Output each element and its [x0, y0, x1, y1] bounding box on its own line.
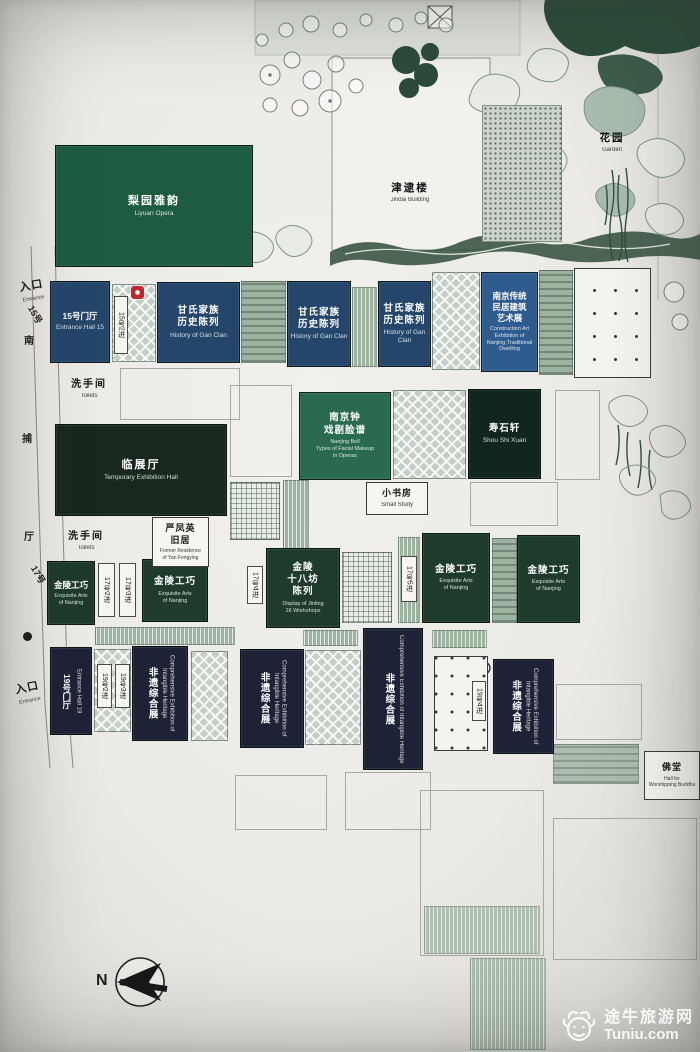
building-label-en: Shou Shi Xuan	[483, 437, 526, 445]
label-zh: 入口	[14, 680, 40, 697]
courtyard-strip	[241, 281, 286, 363]
building-label-en: Liyuan Opera	[134, 210, 173, 218]
building-label-en: Comprehensive Exhibition of Intangible H…	[523, 660, 538, 753]
building-label-en: History of Gan Clan	[170, 332, 227, 340]
building-yan-fengying-residence: 严凤英 旧居 Former Residence of Yan Fengying	[152, 517, 209, 567]
building-label-en: Comprehensive Exhibition of Intangible H…	[272, 650, 287, 747]
outline-block	[553, 818, 697, 960]
outline-block	[230, 385, 292, 477]
compass-north-label: N	[96, 972, 108, 990]
street-char-bu: 捕	[22, 430, 32, 445]
outline-block	[345, 772, 431, 830]
label-en: Former Residence of Yan Fengying	[160, 548, 201, 561]
label-zh: 洗手间	[68, 531, 104, 542]
building-label-en: Comprehensive Exhibition of Intangible H…	[160, 647, 175, 740]
building-jinling-crafts-3: 金陵工巧 Exquisite Arts of Nanjing	[422, 533, 490, 623]
building-label-en: Exquisite Arts of Nanjing	[532, 579, 565, 593]
building-intangible-heritage-2: 非遗综合展 Comprehensive Exhibition of Intang…	[240, 649, 304, 748]
garden-ground	[255, 0, 520, 250]
courtyard-marker: 15号2进	[114, 296, 128, 354]
building-label-zh: 金陵工巧	[527, 565, 569, 577]
courtyard-strip	[432, 630, 487, 648]
building-label-zh: 金陵工巧	[435, 564, 477, 576]
label-en: Hall for Worshipping Buddha	[649, 776, 695, 789]
building-jinling-crafts-1: 金陵工巧 Exquisite Arts of Nanjing	[47, 561, 95, 625]
dotted-terrace	[482, 105, 562, 242]
label-en: Jindai Building	[360, 197, 460, 205]
building-label-zh: 非遗综合展	[509, 680, 521, 733]
courtyard-marker: 17号4进	[247, 566, 263, 604]
building-intangible-heritage-3: 非遗综合展 Comprehensive Exhibition of Intang…	[363, 628, 423, 770]
building-gan-clan-history-3: 甘氏家族 历史陈列 History of Gan Clan	[378, 281, 431, 367]
building-label-en: Construction Art Exhibition of Nanjing T…	[487, 326, 533, 354]
building-label-zh: 19号门厅	[61, 674, 72, 709]
courtyard-strip	[95, 627, 235, 645]
label-jindai-building: 津逮楼 Jindai Building	[360, 178, 460, 205]
building-label-zh: 金陵 十八坊 陈列	[287, 562, 319, 599]
courtyard-strip	[553, 744, 639, 784]
courtyard-strip	[470, 958, 546, 1050]
building-label-zh: 非遗综合展	[382, 673, 394, 726]
street-char-ting: 厅	[24, 528, 34, 543]
building-intangible-heritage-4: 非遗综合展 Comprehensive Exhibition of Intang…	[493, 659, 554, 754]
courtyard-strip	[492, 538, 517, 623]
label-en: Garden	[580, 147, 644, 155]
building-label-zh: 临展厅	[122, 458, 161, 472]
building-label-zh: 南京钟 戏剧脸谱	[324, 412, 366, 437]
building-label-zh: 金陵工巧	[154, 576, 196, 588]
outline-block	[235, 775, 327, 830]
grid-courtyard	[342, 552, 392, 623]
courtyard-pattern	[191, 651, 228, 741]
building-label-zh: 金陵工巧	[54, 580, 88, 591]
courtyard-marker: 19号2进	[97, 664, 112, 708]
courtyard-marker: 17号3进	[119, 563, 136, 617]
building-label-en: History of Gan Clan	[379, 329, 430, 345]
building-label-zh: 甘氏家族 历史陈列	[298, 307, 340, 332]
building-label-en: Exquisite Arts of Nanjing	[439, 578, 472, 592]
opera-courtyard	[393, 390, 466, 479]
building-label-en: Exquisite Arts of Nanjing	[158, 591, 191, 605]
outline-block	[120, 368, 240, 420]
courtyard-marker: 19号4进	[472, 681, 486, 721]
building-label-zh: 梨园雅韵	[128, 194, 180, 208]
label-garden: 花园 Garden	[580, 128, 644, 155]
courtyard-marker: 17号5进	[401, 556, 417, 602]
building-label-en: Display of Jinling 18 Workshops	[282, 601, 323, 615]
label-toilets-2: 洗手间 Toilets	[58, 526, 114, 553]
pillared-hall	[574, 268, 651, 378]
label-en: Toilets	[58, 545, 114, 553]
label-zh: 津逮楼	[391, 182, 429, 194]
building-jinling-crafts-4: 金陵工巧 Exquisite Arts of Nanjing	[517, 535, 580, 623]
building-label-zh: 甘氏家族 历史陈列	[383, 303, 425, 328]
building-label-zh: 甘氏家族 历史陈列	[177, 305, 219, 330]
building-label-en: Nanjing Bell Types of Facial Makeup in O…	[316, 439, 374, 460]
building-liyuan-opera: 梨园雅韵 Liyuan Opera	[55, 145, 253, 267]
outline-block	[470, 482, 558, 526]
site-map-photo: 梨园雅韵 Liyuan Opera 津逮楼 Jindai Building 花园…	[0, 0, 700, 1052]
label-zh: 花园	[600, 132, 625, 144]
street-dot	[23, 632, 32, 641]
tuniu-cow-icon	[561, 1008, 597, 1044]
building-label-zh: 非遗综合展	[145, 667, 157, 720]
label-en: Toilets	[60, 393, 118, 401]
building-shou-shi-xuan: 寿石轩 Shou Shi Xuan	[468, 389, 541, 479]
building-entrance-hall-19: 19号门厅 Entrance Hall 19	[50, 647, 92, 735]
building-gan-clan-history-2: 甘氏家族 历史陈列 History of Gan Clan	[287, 281, 351, 367]
building-label-zh: 非遗综合展	[257, 672, 269, 725]
building-label-zh: 15号门厅	[63, 311, 98, 322]
watermark-en: Tuniu.com	[604, 1027, 694, 1044]
building-small-study: 小书房 Small Study	[366, 482, 428, 515]
courtyard-marker: 19号3进	[115, 664, 130, 708]
grid-courtyard	[230, 482, 280, 540]
label-en: Small Study	[381, 502, 413, 510]
building-label-en: Entrance Hall 15	[56, 324, 104, 332]
watermark-zh: 途牛旅游网	[604, 1009, 694, 1027]
building-buddha-hall: 佛堂 Hall for Worshipping Buddha	[644, 751, 700, 800]
courtyard-pattern	[305, 650, 361, 745]
outline-block	[555, 390, 600, 480]
courtyard-strip	[539, 270, 573, 375]
outline-block	[556, 684, 642, 740]
label-zh: 洗手间	[71, 379, 107, 390]
label-zh: 入口	[19, 278, 45, 294]
building-entrance-hall-15: 15号门厅 Entrance Hall 15	[50, 281, 110, 363]
building-temporary-exhibition-hall: 临展厅 Temporary Exhibition Hall	[55, 424, 227, 516]
street-char-nan: 南	[24, 332, 34, 347]
building-label-en: Entrance Hall 19	[74, 669, 82, 713]
courtyard-strip	[303, 630, 358, 646]
rockery-dark-mass	[544, 0, 700, 95]
label-zh: 小书房	[382, 488, 412, 500]
building-label-en: Exquisite Arts of Nanjing	[54, 593, 87, 607]
building-label-zh: 寿石轩	[489, 423, 521, 435]
label-zh: 严凤英 旧居	[165, 523, 195, 546]
building-nanjing-bell-opera-masks: 南京钟 戏剧脸谱 Nanjing Bell Types of Facial Ma…	[299, 392, 391, 480]
location-marker-icon	[131, 286, 144, 299]
courtyard-strip	[352, 287, 377, 367]
building-label-en: Temporary Exhibition Hall	[104, 474, 178, 482]
compass-icon	[116, 958, 167, 1006]
courtyard-pattern	[432, 272, 480, 370]
building-jinling-18-workshops: 金陵 十八坊 陈列 Display of Jinling 18 Workshop…	[266, 548, 340, 628]
courtyard-strip	[424, 906, 540, 954]
building-intangible-heritage-1: 非遗综合展 Comprehensive Exhibition of Intang…	[132, 646, 188, 741]
building-jinling-crafts-2: 金陵工巧 Exquisite Arts of Nanjing	[142, 559, 208, 622]
building-label-zh: 南京传统 民居建筑 艺术展	[492, 291, 526, 324]
building-gan-clan-history-1: 甘氏家族 历史陈列 History of Gan Clan	[157, 282, 240, 363]
building-label-en: History of Gan Clan	[291, 333, 348, 341]
label-zh: 佛堂	[662, 762, 682, 774]
building-traditional-dwelling-exhibition: 南京传统 民居建筑 艺术展 Construction Art Exhibitio…	[481, 272, 538, 372]
courtyard-marker: 17号2进	[98, 563, 115, 617]
label-toilets-1: 洗手间 Toilets	[60, 374, 118, 401]
tuniu-watermark: 途牛旅游网 Tuniu.com	[561, 1008, 694, 1044]
building-label-en: Comprehensive Exhibition of Intangible H…	[396, 635, 404, 763]
